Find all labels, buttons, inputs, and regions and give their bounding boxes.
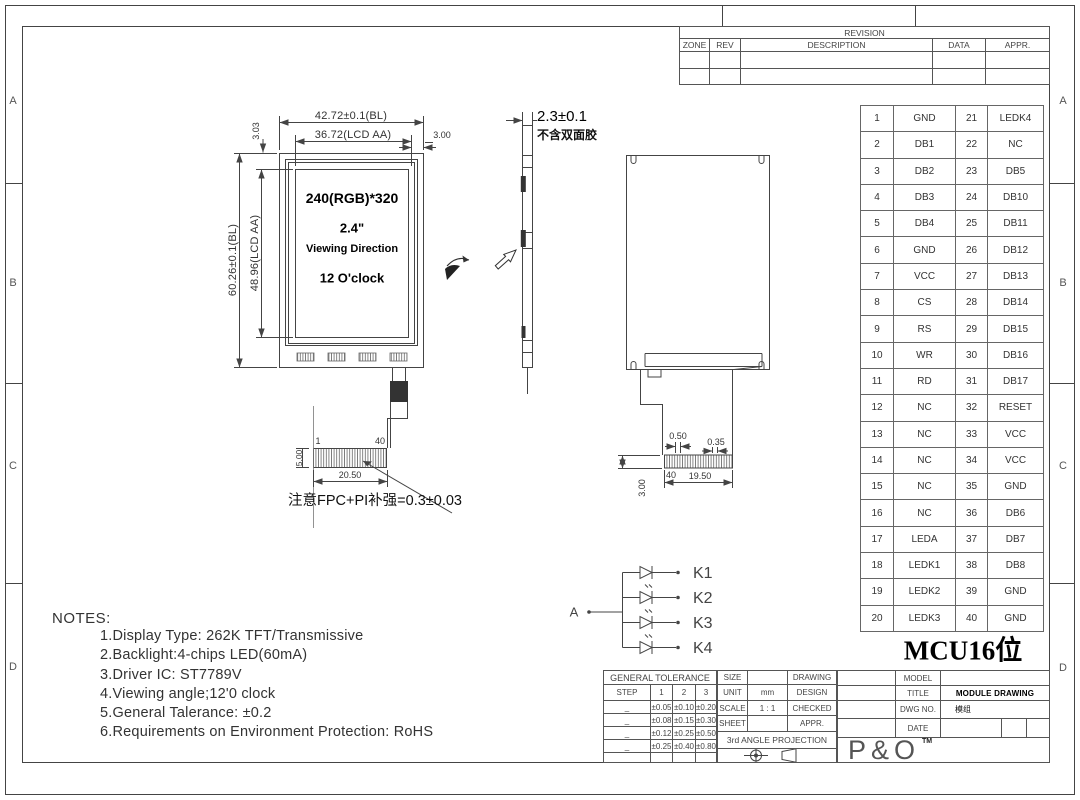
pin-signal: DB16 (988, 342, 1044, 368)
tolerance-cell: ±0.05 (651, 701, 673, 714)
lcd-viewing-direction-label: Viewing Direction (306, 243, 398, 255)
led-circuit-diagram (587, 566, 680, 654)
pin-signal: NC (894, 421, 956, 447)
engineering-drawing-sheet: A B C D A B C D REVISION ZONE REV DESCRI… (0, 0, 1080, 800)
pin-row: 16NC36DB6 (861, 500, 1044, 526)
tolerance-col: 3 (696, 685, 716, 701)
pin-number: 7 (861, 263, 894, 289)
zone-letter-right: B (1059, 277, 1066, 289)
pin-number: 24 (956, 184, 988, 210)
tolerance-step-label: STEP (604, 685, 651, 701)
pin-signal: GND (894, 237, 956, 263)
dim-width-outer: 42.72±0.1(BL) (315, 110, 387, 122)
model-value (941, 671, 1049, 686)
led-diode-icon (640, 617, 652, 629)
pin-number: 23 (956, 158, 988, 184)
led-cathode-label: K4 (693, 640, 713, 658)
unit-label: UNIT (718, 685, 748, 701)
tolerance-cell: ±0.15 (673, 714, 696, 727)
date-value (941, 719, 1049, 738)
pin-number: 2 (861, 132, 894, 158)
pin-number: 3 (861, 158, 894, 184)
note-item: 1.Display Type: 262K TFT/Transmissive (100, 627, 433, 646)
tolerance-cell: ±0.12 (651, 727, 673, 740)
pin-last-label: 40 (375, 436, 385, 446)
pin-signal: NC (894, 447, 956, 473)
pin-signal: DB3 (894, 184, 956, 210)
pin-signal: DB1 (894, 132, 956, 158)
drawing-info-table: SIZE DRAWING UNIT mm DESIGN SCALE 1 : 1 … (717, 670, 837, 763)
tolerance-col: 2 (673, 685, 696, 701)
tolerance-col: 1 (651, 685, 673, 701)
tolerance-cell: ±0.10 (673, 701, 696, 714)
pin-signal: GND (988, 605, 1044, 631)
pin-assignment-table: 1GND21LEDK4 2DB122NC 3DB223DB5 4DB324DB1… (860, 105, 1044, 632)
size-label: SIZE (718, 671, 748, 685)
note-item: 4.Viewing angle;12'0 clock (100, 685, 433, 704)
title-value: MODULE DRAWING (941, 686, 1049, 701)
pin-number: 22 (956, 132, 988, 158)
scale-label: SCALE (718, 701, 748, 716)
projection-symbols (718, 749, 836, 762)
pin-number: 40 (956, 605, 988, 631)
size-value (748, 671, 788, 685)
pin-signal: VCC (894, 263, 956, 289)
pin-row: 4DB324DB10 (861, 184, 1044, 210)
pin-signal: LEDK4 (988, 106, 1044, 132)
pin-row: 2DB122NC (861, 132, 1044, 158)
revision-header: APPR. (986, 39, 1049, 52)
tolerance-cell: ±0.50 (696, 727, 716, 740)
pin-signal: DB7 (988, 526, 1044, 552)
drawing-value (838, 671, 896, 686)
arc-arrowhead (463, 256, 470, 263)
design-label: DESIGN (788, 685, 836, 701)
pin-row: 20LEDK340GND (861, 605, 1044, 631)
pin-number: 19 (861, 579, 894, 605)
pin-number: 26 (956, 237, 988, 263)
pin-number: 38 (956, 553, 988, 579)
revision-cell (986, 69, 1049, 84)
pin-row: 10WR30DB16 (861, 342, 1044, 368)
revision-cell (680, 52, 710, 69)
dim-height-outer: 60.26±0.1(BL) (227, 224, 239, 296)
notes-heading: NOTES: (52, 610, 433, 627)
notes-block: NOTES: 1.Display Type: 262K TFT/Transmis… (52, 610, 433, 743)
pin-row: 5DB425DB11 (861, 211, 1044, 237)
pin-number: 21 (956, 106, 988, 132)
pin-number: 37 (956, 526, 988, 552)
pin-number: 35 (956, 474, 988, 500)
revision-header: DATA (933, 39, 986, 52)
note-item: 5.General Talerance: ±0.2 (100, 704, 433, 723)
pin-signal: WR (894, 342, 956, 368)
company-logo: P&O TM (838, 738, 1049, 762)
pin-signal: DB10 (988, 184, 1044, 210)
pin-signal: LEDK1 (894, 553, 956, 579)
pin-number: 30 (956, 342, 988, 368)
pin-number: 31 (956, 368, 988, 394)
revision-header: DESCRIPTION (741, 39, 933, 52)
tolerance-cell (651, 753, 673, 762)
pin-signal: DB2 (894, 158, 956, 184)
checked-value (838, 701, 896, 719)
pin-signal: DB13 (988, 263, 1044, 289)
tape-note: 不含双面胶 (537, 126, 597, 143)
pin-signal: LEDK3 (894, 605, 956, 631)
revision-cell (741, 69, 933, 84)
tolerance-cell: _ (604, 727, 651, 740)
tolerance-cell: ±0.40 (673, 740, 696, 753)
dim-pad-width: 0.35 (707, 437, 725, 447)
lcd-size: 2.4" (340, 221, 364, 236)
lcd-viewing-direction-value: 12 O'clock (320, 271, 385, 286)
tolerance-cell: ±0.25 (673, 727, 696, 740)
dim-tail: 3.00 (637, 479, 647, 497)
revision-header: ZONE (680, 39, 710, 52)
back-view-outline (627, 156, 770, 469)
appr-label: APPR. (788, 716, 836, 732)
revision-cell (986, 52, 1049, 69)
lcd-resolution: 240(RGB)*320 (306, 190, 399, 206)
pin-signal: NC (894, 500, 956, 526)
tolerance-cell: ±0.08 (651, 714, 673, 727)
led-cathode-label: K2 (693, 590, 713, 608)
pin-signal: NC (894, 474, 956, 500)
pin-row: 14NC34VCC (861, 447, 1044, 473)
pin-signal: VCC (988, 447, 1044, 473)
pin-row: 13NC33VCC (861, 421, 1044, 447)
pin-row: 15NC35GND (861, 474, 1044, 500)
dim-fpc-width: 20.50 (339, 470, 362, 480)
pin-row: 8CS28DB14 (861, 290, 1044, 316)
led-diode-icon (640, 642, 652, 654)
zone-letter-left: D (9, 661, 17, 673)
led-cathode-label: K3 (693, 615, 713, 633)
pin-number: 29 (956, 316, 988, 342)
tolerance-cell: ±0.80 (696, 740, 716, 753)
pin-signal: CS (894, 290, 956, 316)
third-angle-symbol (718, 749, 836, 762)
dim-thickness: 2.3±0.1 (537, 108, 587, 125)
tolerance-cell: _ (604, 714, 651, 727)
led-cathode-label: K1 (693, 565, 713, 583)
revision-cell (710, 52, 741, 69)
appr-value (838, 719, 896, 738)
pin-row: 18LEDK138DB8 (861, 553, 1044, 579)
zone-letter-right: C (1059, 460, 1067, 472)
fpc-contact-strip (314, 449, 387, 468)
tolerance-cell: _ (604, 740, 651, 753)
revision-cell (680, 69, 710, 84)
pin-number: 25 (956, 211, 988, 237)
pin-signal: LEDK2 (894, 579, 956, 605)
zone-letter-left: B (9, 277, 16, 289)
pin-signal: DB8 (988, 553, 1044, 579)
pin-signal: RESET (988, 395, 1044, 421)
pin-signal: GND (894, 106, 956, 132)
pin-number: 14 (861, 447, 894, 473)
revision-title: REVISION (680, 27, 1049, 39)
pin-signal: RD (894, 368, 956, 394)
pin-signal: DB17 (988, 368, 1044, 394)
mcu-interface-caption: MCU16位 (904, 629, 1022, 668)
dim-fpc-height: 5.00 (294, 450, 304, 467)
pin-signal: NC (894, 395, 956, 421)
pin-number: 20 (861, 605, 894, 631)
led-diode-icon (640, 592, 652, 604)
tolerance-cell: ±0.20 (696, 701, 716, 714)
tolerance-cell (673, 753, 696, 762)
revision-cell (741, 52, 933, 69)
dim-height-aa: 48.96(LCD AA) (249, 215, 261, 292)
drawing-label: DRAWING (788, 671, 836, 685)
title-label: TITLE (896, 686, 941, 701)
pin-signal: DB14 (988, 290, 1044, 316)
projection-label: 3rd ANGLE PROJECTION (718, 732, 836, 749)
pin-first-label: 1 (315, 436, 320, 446)
pin-label-back: 40 (666, 470, 676, 480)
revision-header: REV (710, 39, 741, 52)
pin-number: 39 (956, 579, 988, 605)
fpc-contact-strip-back (665, 455, 733, 468)
pin-signal: DB5 (988, 158, 1044, 184)
date-divider (1026, 719, 1027, 737)
dwg-no-value: 模组 (941, 701, 1049, 719)
note-item: 6.Requirements on Environment Protection… (100, 723, 433, 742)
unit-value: mm (748, 685, 788, 701)
led-anode-label: A (570, 605, 579, 620)
logo-text: P&O (848, 738, 920, 762)
scale-value: 1 : 1 (748, 701, 788, 716)
design-value (838, 686, 896, 701)
zone-letter-right: D (1059, 662, 1067, 674)
pin-number: 10 (861, 342, 894, 368)
logo-trademark: TM (922, 738, 932, 745)
revision-cell (710, 69, 741, 84)
revision-cell (933, 52, 986, 69)
fpc-note: 注意FPC+PI补强=0.3±0.03 (288, 489, 462, 510)
pin-signal: DB11 (988, 211, 1044, 237)
pin-number: 33 (956, 421, 988, 447)
pin-number: 18 (861, 553, 894, 579)
zone-letter-left: C (9, 460, 17, 472)
checked-label: CHECKED (788, 701, 836, 716)
pin-number: 15 (861, 474, 894, 500)
pin-signal: GND (988, 474, 1044, 500)
note-item: 3.Driver IC: ST7789V (100, 666, 433, 685)
pin-signal: GND (988, 579, 1044, 605)
tolerance-cell: ±0.30 (696, 714, 716, 727)
model-label: MODEL (896, 671, 941, 686)
pin-number: 8 (861, 290, 894, 316)
pin-row: 11RD31DB17 (861, 368, 1044, 394)
led-diode-icon (640, 567, 652, 579)
pin-row: 19LEDK239GND (861, 579, 1044, 605)
tolerance-cell: _ (604, 701, 651, 714)
document-info-table: MODEL TITLE MODULE DRAWING DWG NO. 模组 DA… (837, 670, 1050, 763)
zone-letter-left: A (9, 95, 16, 107)
pin-signal: DB4 (894, 211, 956, 237)
tolerance-title: GENERAL TOLERANCE (604, 671, 716, 685)
pin-number: 9 (861, 316, 894, 342)
sheet-label: SHEET (718, 716, 748, 732)
zone-letter-right: A (1059, 95, 1066, 107)
tolerance-cell (604, 753, 651, 762)
pin-row: 1GND21LEDK4 (861, 106, 1044, 132)
tolerance-cell: ±0.25 (651, 740, 673, 753)
eye-icon (445, 265, 460, 280)
pin-row: 3DB223DB5 (861, 158, 1044, 184)
pin-signal: VCC (988, 421, 1044, 447)
pin-number: 12 (861, 395, 894, 421)
pin-row: 6GND26DB12 (861, 237, 1044, 263)
pin-number: 13 (861, 421, 894, 447)
dim-pad-pitch: 0.50 (669, 431, 687, 441)
dim-side-margin: 3.00 (433, 130, 451, 140)
pin-signal: DB12 (988, 237, 1044, 263)
pin-number: 11 (861, 368, 894, 394)
view-arrow-icon (495, 250, 516, 269)
pin-signal: LEDA (894, 526, 956, 552)
revision-table: REVISION ZONE REV DESCRIPTION DATA APPR. (679, 26, 1050, 85)
date-label: DATE (896, 719, 941, 738)
pin-signal: DB6 (988, 500, 1044, 526)
tolerance-cell (696, 753, 716, 762)
pin-number: 28 (956, 290, 988, 316)
general-tolerance-table: GENERAL TOLERANCE STEP 1 2 3 _ ±0.05 ±0.… (603, 670, 717, 763)
pin-number: 27 (956, 263, 988, 289)
pin-signal: RS (894, 316, 956, 342)
viewing-direction-indicator (445, 250, 516, 280)
dim-contact-width: 19.50 (689, 471, 712, 481)
pin-number: 5 (861, 211, 894, 237)
pin-number: 17 (861, 526, 894, 552)
dim-width-aa: 36.72(LCD AA) (315, 129, 392, 141)
pin-row: 17LEDA37DB7 (861, 526, 1044, 552)
pin-signal: DB15 (988, 316, 1044, 342)
pin-row: 12NC32RESET (861, 395, 1044, 421)
pin-row: 9RS29DB15 (861, 316, 1044, 342)
pin-number: 36 (956, 500, 988, 526)
pin-row: 7VCC27DB13 (861, 263, 1044, 289)
dwg-no-label: DWG NO. (896, 701, 941, 719)
pin-number: 32 (956, 395, 988, 421)
pin-number: 4 (861, 184, 894, 210)
note-item: 2.Backlight:4-chips LED(60mA) (100, 646, 433, 665)
pin-number: 34 (956, 447, 988, 473)
pin-signal: NC (988, 132, 1044, 158)
fpc-stiffener (390, 381, 408, 402)
sheet-value (748, 716, 788, 732)
date-divider (1001, 719, 1002, 737)
revision-cell (933, 69, 986, 84)
pin-number: 16 (861, 500, 894, 526)
dim-top-margin: 3.03 (251, 122, 261, 140)
pin-number: 6 (861, 237, 894, 263)
pin-number: 1 (861, 106, 894, 132)
